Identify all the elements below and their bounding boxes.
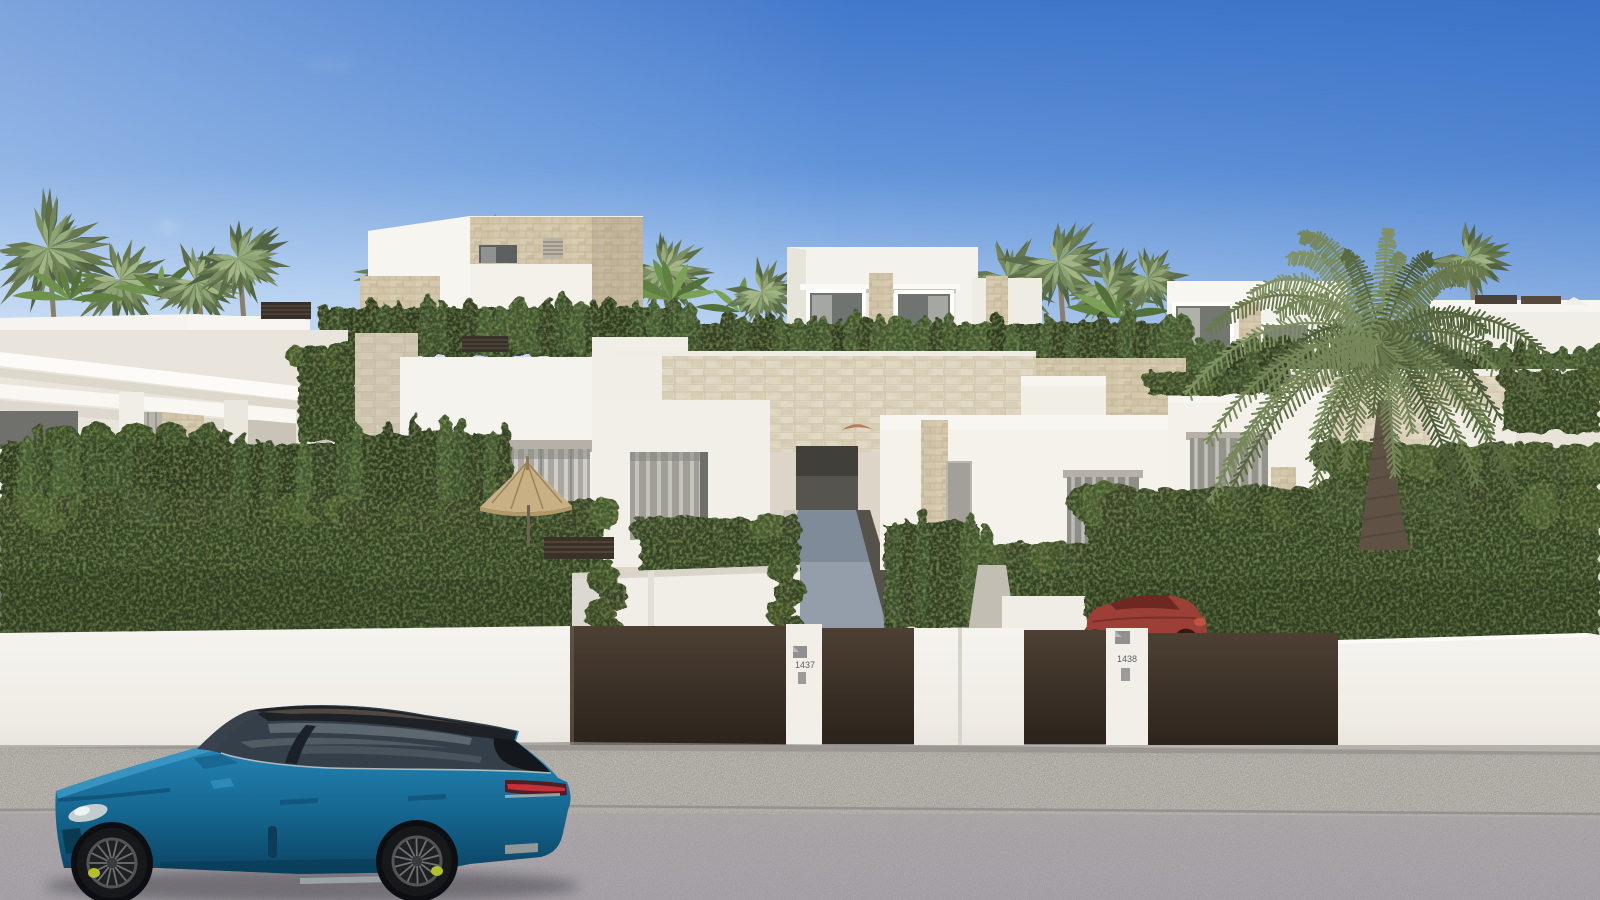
svg-text:1437: 1437 [795,660,815,670]
svg-text:1438: 1438 [1117,654,1137,664]
